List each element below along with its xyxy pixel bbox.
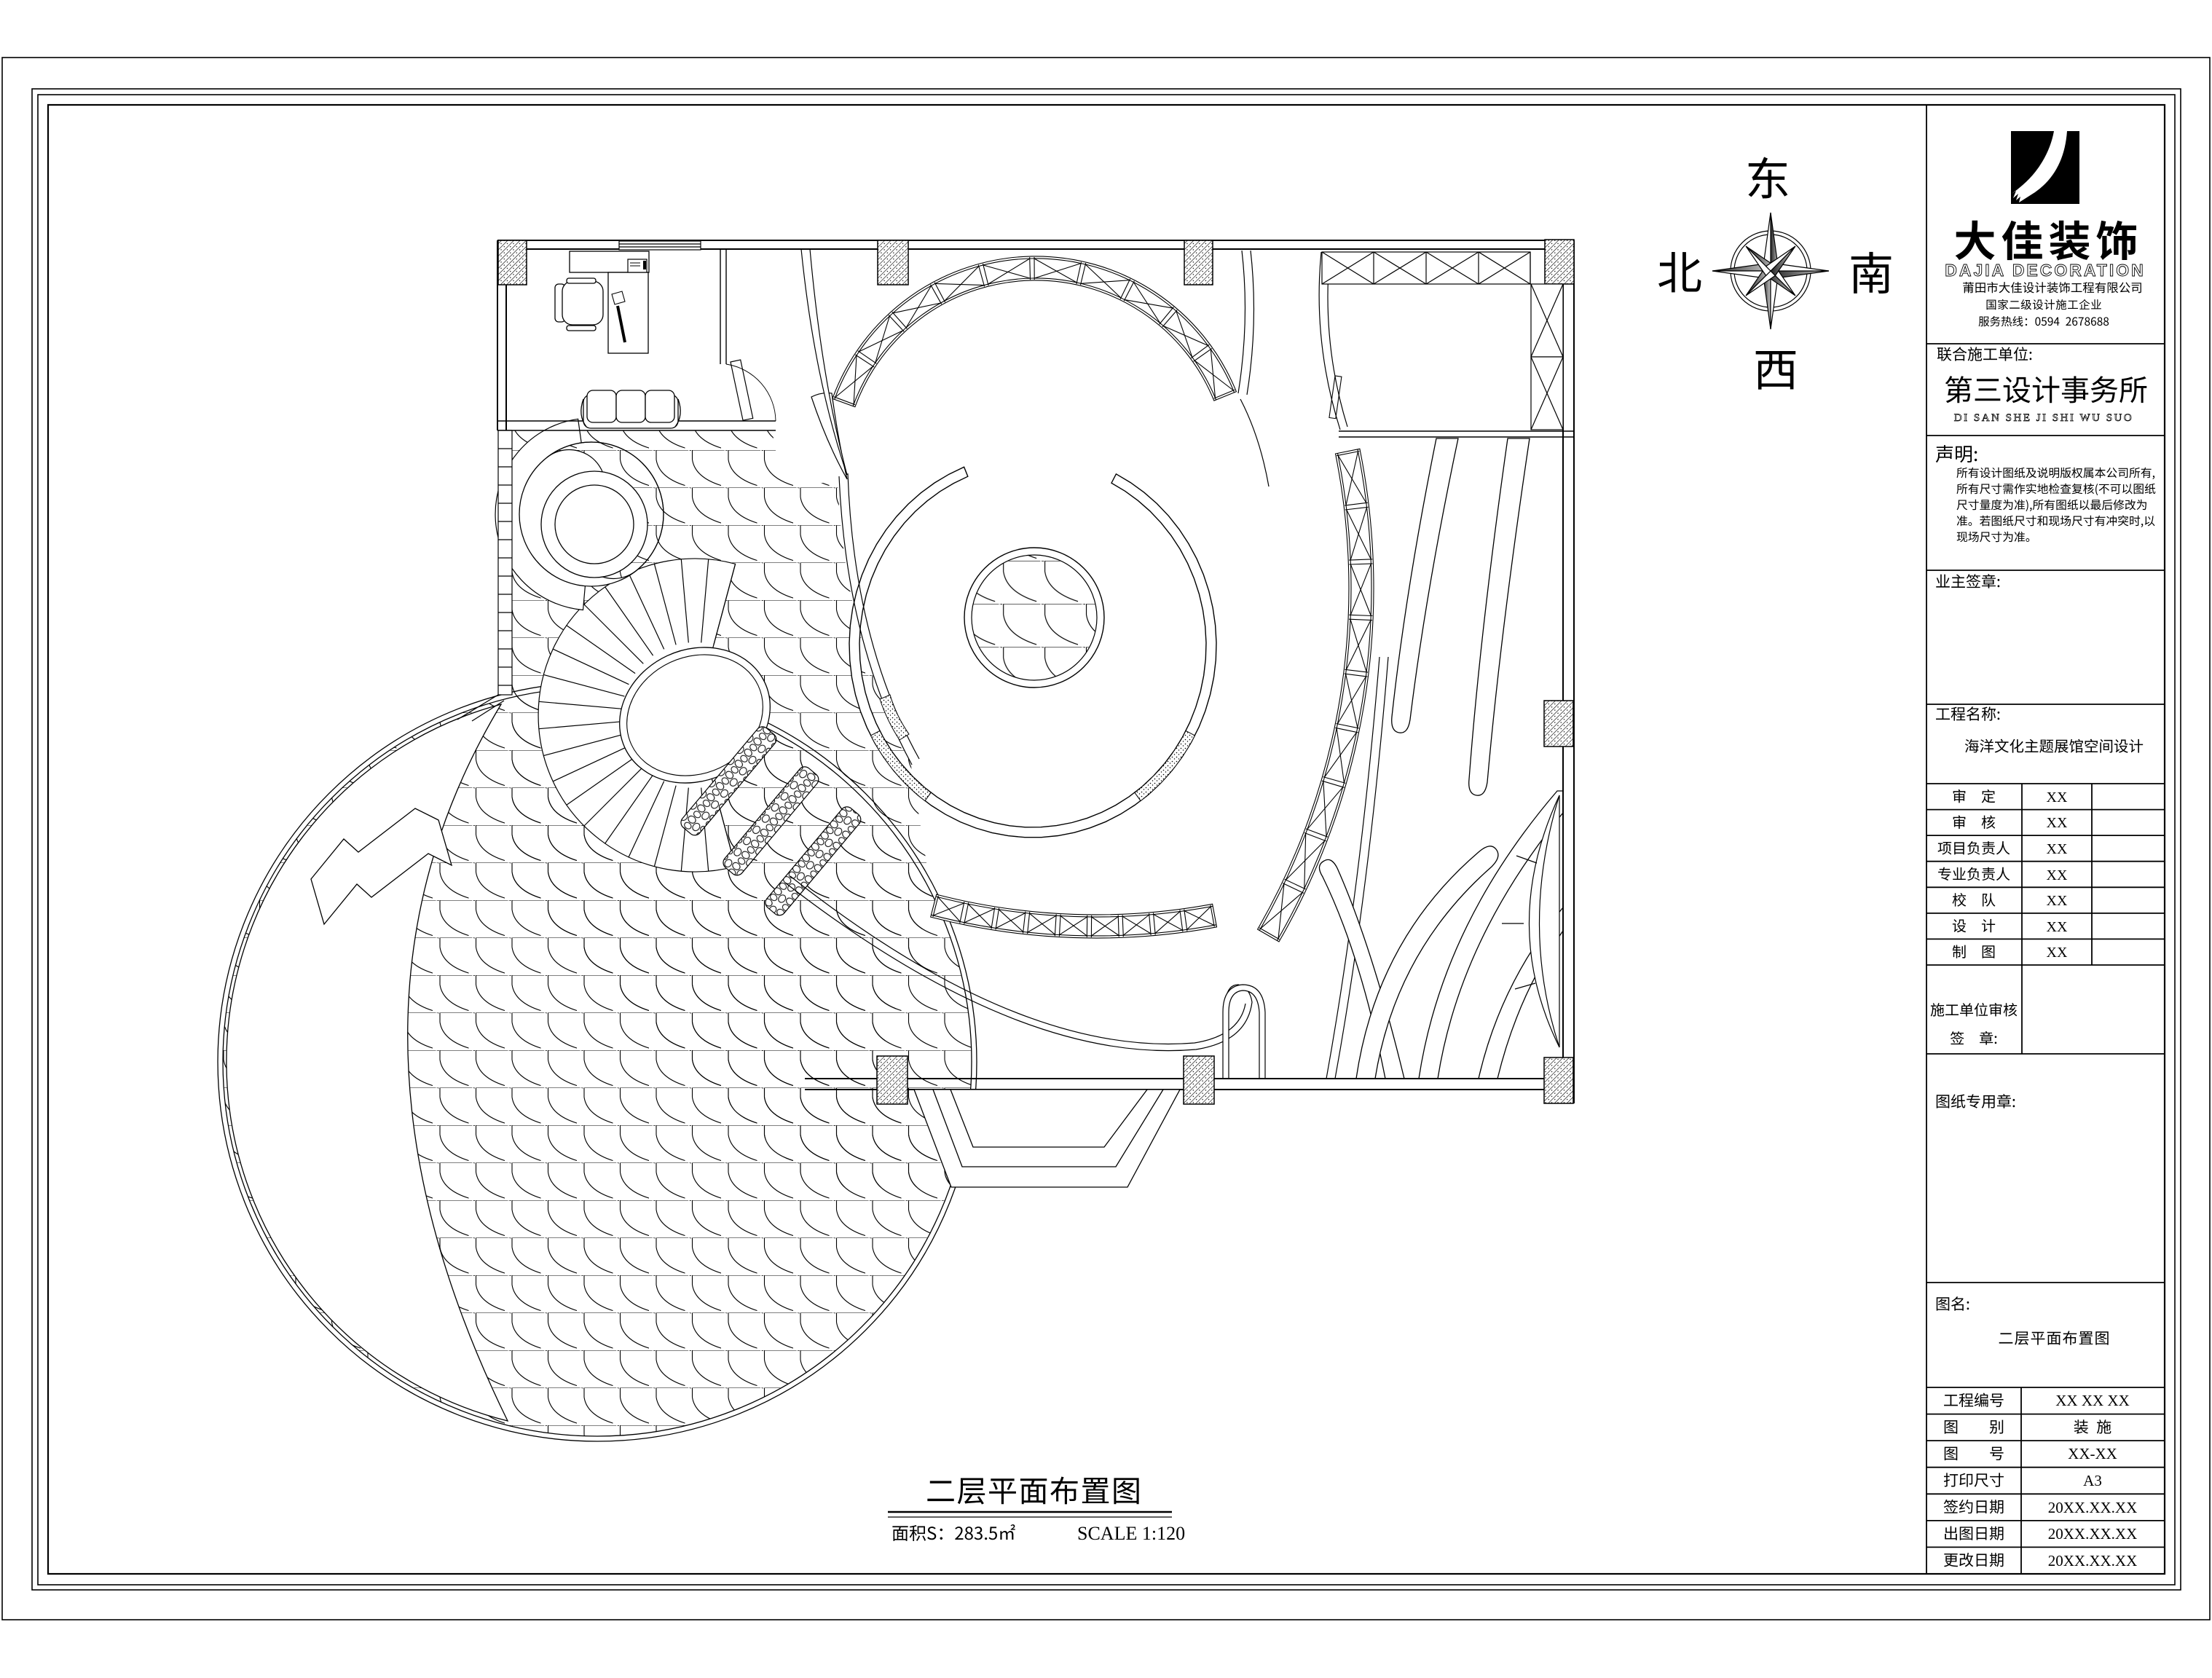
svg-text:DAJIA DECORATION: DAJIA DECORATION xyxy=(1945,261,2145,280)
svg-text:XX: XX xyxy=(2047,945,2068,961)
svg-text:20XX.XX.XX: 20XX.XX.XX xyxy=(2048,1525,2138,1543)
svg-text:XX: XX xyxy=(2047,841,2068,857)
svg-text:XX XX XX: XX XX XX xyxy=(2055,1392,2130,1409)
svg-text:A3: A3 xyxy=(2083,1472,2102,1489)
svg-text:XX-XX: XX-XX xyxy=(2068,1445,2117,1462)
svg-text:SCALE 1:120: SCALE 1:120 xyxy=(1077,1523,1185,1544)
svg-text:20XX.XX.XX: 20XX.XX.XX xyxy=(2048,1552,2138,1569)
svg-text:DI SAN SHE JI SHI WU SUO: DI SAN SHE JI SHI WU SUO xyxy=(1954,412,2133,424)
svg-text:20XX.XX.XX: 20XX.XX.XX xyxy=(2048,1499,2138,1516)
svg-text:XX: XX xyxy=(2047,919,2068,935)
svg-text:XX: XX xyxy=(2047,789,2068,805)
svg-text:XX: XX xyxy=(2047,867,2068,883)
svg-text:XX: XX xyxy=(2047,893,2068,909)
svg-text:XX: XX xyxy=(2047,815,2068,831)
